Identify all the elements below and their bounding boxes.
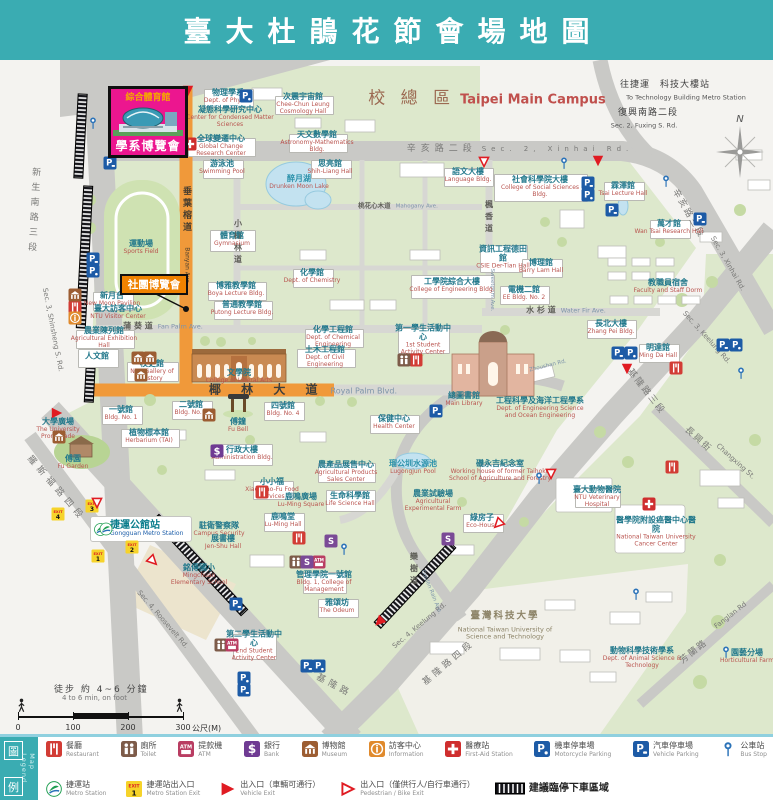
legend-label-en: ATM xyxy=(198,751,222,758)
legend-item: 出入口（車輛可通行）Vehicle Exit xyxy=(220,780,320,797)
legend-label-zh: 醫療站 xyxy=(465,741,512,751)
legend-label-en: Pedestrian / Bike Exit xyxy=(360,790,475,797)
dropoff-icon xyxy=(495,781,525,796)
walk-time-label-en: 4 to 6 min, on foot xyxy=(62,694,127,702)
legend-label-zh: 公車站 xyxy=(740,741,767,751)
scale-tick xyxy=(128,712,129,720)
legend-tab-zh2: 例 xyxy=(4,777,23,796)
svg-text:i: i xyxy=(375,745,378,756)
bank-icon: $ xyxy=(244,741,260,757)
gongguan-station-box: 捷運公館站 Gongguan Metro Station xyxy=(90,516,192,542)
map-base xyxy=(0,60,773,736)
legend-label-zh: 博物館 xyxy=(322,741,347,751)
legend-item: 廁所Toilet xyxy=(121,741,157,758)
sports-field xyxy=(104,180,180,320)
gymnasium-illustration xyxy=(113,104,183,136)
scale-tick-label: 0 xyxy=(15,723,20,732)
pc-icon: P xyxy=(633,741,649,757)
legend-label-zh: 提款機 xyxy=(198,741,222,751)
scale-tick xyxy=(18,712,19,720)
museum-icon xyxy=(302,741,318,757)
page-title: 臺大杜鵑花節會場地圖 xyxy=(169,10,603,50)
legend-item: 博物館Museum xyxy=(302,741,347,758)
legend-label-en: Vehicle Exit xyxy=(240,790,320,797)
legend-item: 出入口（僅供行人/自行車通行）Pedestrian / Bike Exit xyxy=(340,780,475,797)
compass-rose: N xyxy=(712,112,768,184)
scale-tick-label: 200 xyxy=(120,723,135,732)
legend-item: P機車停車場Motorcycle Parking xyxy=(534,741,611,758)
map-canvas: 校 總 區Taipei Main Campus往捷運 科技大樓站To Techn… xyxy=(0,60,773,736)
legend-row-1: 餐廳Restaurant廁所ToiletATM提款機ATM$銀行Bank博物館M… xyxy=(46,741,767,758)
legend-label-en: Information xyxy=(389,751,424,758)
svg-text:1: 1 xyxy=(132,788,137,797)
svg-text:P: P xyxy=(538,743,546,755)
pm-icon: P xyxy=(534,741,550,757)
legend-label-zh: 餐廳 xyxy=(66,741,99,751)
legend-label-en: Toilet xyxy=(141,751,157,758)
legend-label-zh: 機車停車場 xyxy=(554,741,611,751)
pexit-icon xyxy=(340,781,356,797)
svg-text:P: P xyxy=(636,743,644,755)
toilet-icon xyxy=(121,741,137,757)
legend-label-zh: 廁所 xyxy=(141,741,157,751)
info-icon: i xyxy=(369,741,385,757)
map-title-bar: 臺大杜鵑花節會場地圖 xyxy=(0,0,773,60)
legend-label-zh: 訪客中心 xyxy=(389,741,424,751)
legend-item: $銀行Bank xyxy=(244,741,280,758)
scale-tick-label: 300 xyxy=(175,723,190,732)
scale-tick-label: 100 xyxy=(65,723,80,732)
legend-label-zh: 汽車停車場 xyxy=(653,741,699,751)
exit-icon: EXIT1 xyxy=(126,781,142,797)
club-expo-label: 社團博覽會 xyxy=(128,277,181,292)
scale-segment xyxy=(73,713,129,719)
legend-item: 捷運站Metro Station xyxy=(46,780,106,797)
legend-label-zh: 建議臨停下車區域 xyxy=(529,783,609,795)
department-expo-box: 綜合體育館 學系博覽會 xyxy=(108,86,188,158)
legend-item: i訪客中心Information xyxy=(369,741,424,758)
legend-label-zh: 捷運站 xyxy=(66,780,106,790)
map-page: 臺大杜鵑花節會場地圖 xyxy=(0,0,773,800)
gym-name-label: 綜合體育館 xyxy=(125,90,170,103)
metro-icon xyxy=(46,781,62,797)
legend-item: 建議臨停下車區域 xyxy=(495,781,609,796)
legend-item: 餐廳Restaurant xyxy=(46,741,99,758)
legend-label-en: Restaurant xyxy=(66,751,99,758)
legend-label-zh: 出入口（僅供行人/自行車通行） xyxy=(360,780,475,790)
compass-n-label: N xyxy=(736,114,744,125)
department-expo-label: 學系博覽會 xyxy=(115,137,180,154)
legend-label-en: First-Aid Station xyxy=(465,751,512,758)
bus-icon xyxy=(720,741,736,757)
legend-label-zh: 銀行 xyxy=(264,741,280,751)
legend-label-en: Bank xyxy=(264,751,280,758)
fu-garden-illustration xyxy=(54,435,110,469)
legend-item: EXIT1捷運站出入口Metro Station Exit xyxy=(126,780,200,797)
legend-label-en: Bus Stop xyxy=(740,751,767,758)
station-name-en: Gongguan Metro Station xyxy=(110,531,183,538)
vexit-icon xyxy=(220,781,236,797)
svg-text:ATM: ATM xyxy=(180,745,192,751)
legend-label-zh: 出入口（車輛可通行） xyxy=(240,780,320,790)
restaurant-icon xyxy=(46,741,62,757)
liberal-arts-illustration xyxy=(192,349,286,382)
scale-tick xyxy=(183,712,184,720)
scale-tick xyxy=(73,712,74,720)
legend-bar: 圖 Map Legend 例 餐廳Restaurant廁所ToiletATM提款… xyxy=(0,737,773,800)
legend-label-en: Metro Station Exit xyxy=(146,790,200,797)
legend-tab: 圖 Map Legend 例 xyxy=(0,737,38,800)
legend-label-en: Motorcycle Parking xyxy=(554,751,611,758)
legend-label-en: Vehicle Parking xyxy=(653,751,699,758)
legend-label-en: Metro Station xyxy=(66,790,106,797)
club-expo-box: 社團博覽會 xyxy=(120,274,188,295)
legend-label-zh: 捷運站出入口 xyxy=(146,780,200,790)
scale-bar: 徒步 約 4~6 分鐘 4 to 6 min, on foot 01002003… xyxy=(14,676,244,732)
scale-unit: 公尺(M) xyxy=(192,723,221,734)
atm-icon: ATM xyxy=(178,741,194,757)
firstaid-icon xyxy=(445,741,461,757)
legend-item: 公車站Bus Stop xyxy=(720,741,767,758)
legend-item: ATM提款機ATM xyxy=(178,741,222,758)
legend-item: 醫療站First-Aid Station xyxy=(445,741,512,758)
legend-item: P汽車停車場Vehicle Parking xyxy=(633,741,699,758)
legend-label-en: Museum xyxy=(322,751,347,758)
metro-logo-icon xyxy=(94,523,107,536)
legend-row-2: 捷運站Metro StationEXIT1捷運站出入口Metro Station… xyxy=(46,780,767,797)
svg-text:$: $ xyxy=(248,743,256,757)
